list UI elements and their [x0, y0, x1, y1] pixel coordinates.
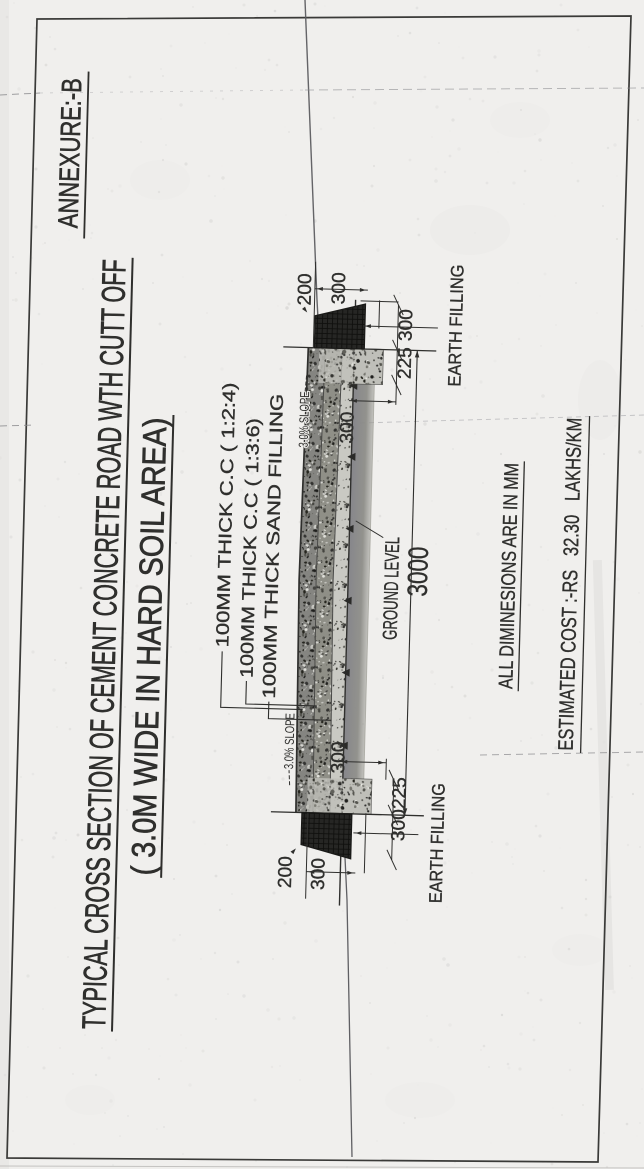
svg-text:300: 300 — [308, 858, 330, 891]
svg-text:3000: 3000 — [402, 546, 434, 597]
svg-text:300: 300 — [337, 411, 359, 444]
svg-text:200: 200 — [294, 273, 316, 306]
svg-text:225: 225 — [395, 347, 417, 380]
svg-text:ANNEXURE:-B: ANNEXURE:-B — [52, 78, 87, 229]
svg-text:225: 225 — [389, 777, 411, 810]
svg-text:GROUND LEVEL: GROUND LEVEL — [380, 537, 405, 641]
svg-text:3.0% SLOPE: 3.0% SLOPE — [281, 713, 297, 770]
svg-text:200: 200 — [275, 856, 297, 889]
svg-text:300: 300 — [328, 272, 350, 305]
svg-text:300: 300 — [396, 309, 418, 342]
svg-text:300: 300 — [328, 741, 350, 774]
svg-text:300: 300 — [388, 809, 410, 842]
svg-text:EARTH FILLING: EARTH FILLING — [444, 264, 467, 386]
svg-text:3.0% SLOPE: 3.0% SLOPE — [296, 391, 312, 448]
svg-text:EARTH FILLING: EARTH FILLING — [426, 783, 449, 903]
